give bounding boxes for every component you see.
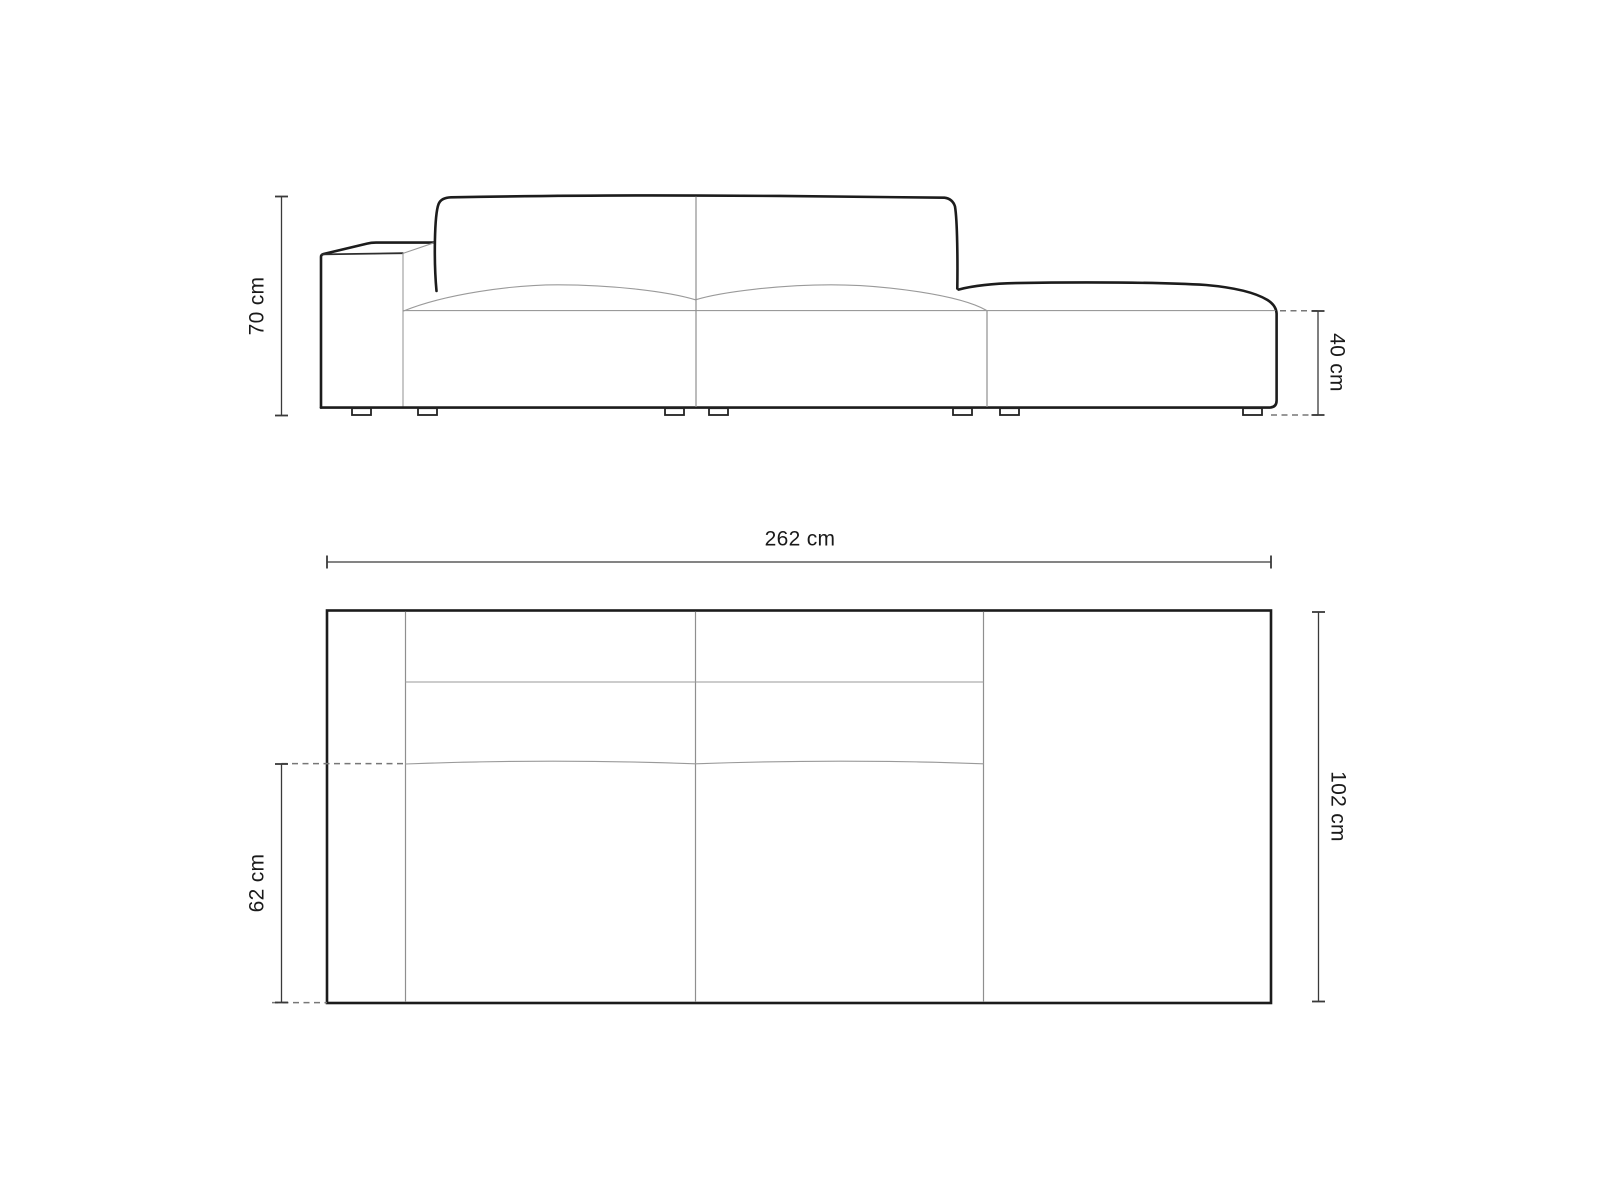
seat-cushion-seams — [404, 285, 987, 311]
dimension-overall-width: 262 cm — [327, 528, 1271, 569]
sofa-feet — [352, 408, 1262, 415]
armrest-top-face-seam — [403, 243, 434, 254]
dim-height-label: 70 cm — [246, 277, 269, 336]
dim-seat-height-label: 40 cm — [1326, 333, 1349, 392]
foot — [709, 408, 728, 415]
dimension-seat-height: 40 cm — [1271, 311, 1349, 415]
sofa-dimension-diagram: 70 cm 40 cm — [0, 0, 1600, 1200]
dimension-overall-height: 70 cm — [246, 197, 289, 416]
sofa-base-chaise-outline — [321, 282, 1277, 407]
foot — [1243, 408, 1262, 415]
sofa-armrest — [321, 243, 434, 408]
plan-outline — [327, 611, 1271, 1004]
dim-depth-label: 102 cm — [1327, 771, 1350, 842]
armrest-front-top-edge — [322, 253, 403, 254]
dim-width-label: 262 cm — [765, 528, 836, 551]
dim-seat-depth-label: 62 cm — [246, 854, 269, 913]
foot — [418, 408, 437, 415]
foot — [953, 408, 972, 415]
foot — [665, 408, 684, 415]
armrest-outline — [321, 243, 434, 408]
foot — [352, 408, 371, 415]
dimension-overall-depth: 102 cm — [1312, 612, 1350, 1002]
foot — [1000, 408, 1019, 415]
diagram-canvas: 70 cm 40 cm — [0, 0, 1600, 1200]
top-view: 262 cm 102 cm 62 cm — [246, 528, 1350, 1004]
front-view: 70 cm 40 cm — [246, 195, 1349, 415]
